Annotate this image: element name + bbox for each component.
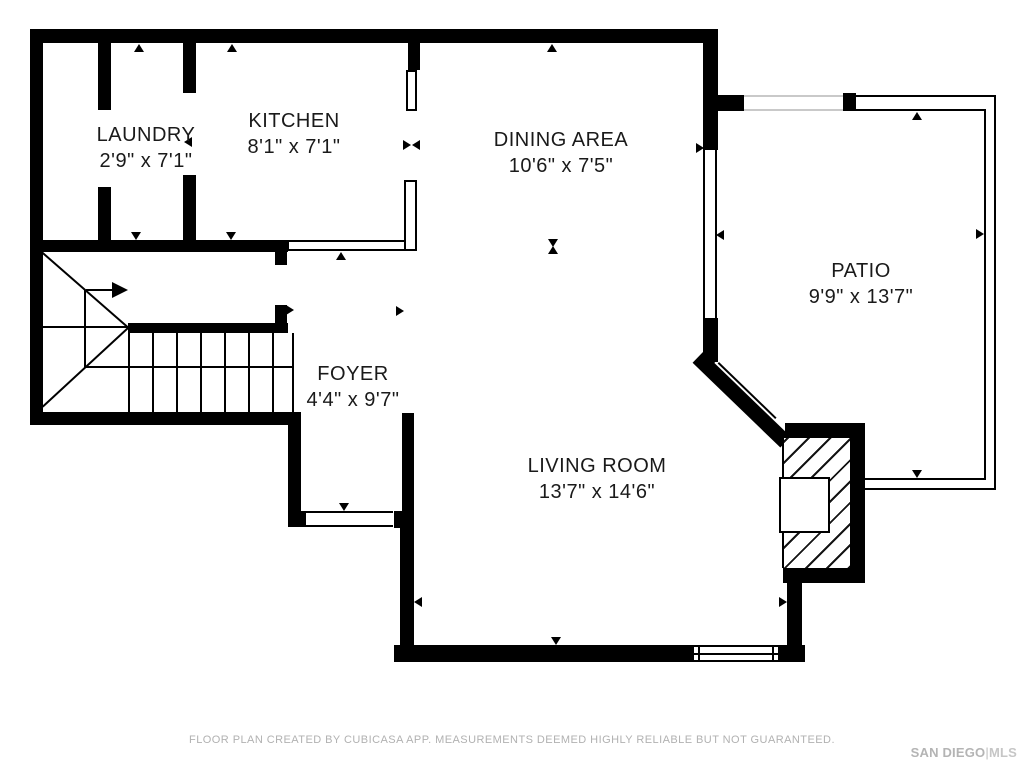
stair-midline	[85, 366, 294, 368]
wall-fireplace-bottom	[783, 568, 865, 583]
stair-tread	[272, 333, 274, 413]
room-dimensions: 9'9" x 13'7"	[809, 284, 914, 310]
opening-marker	[131, 232, 141, 240]
wall-livingroom-left-upper	[402, 413, 414, 513]
slider-marker	[716, 230, 724, 240]
opening-marker	[134, 44, 144, 52]
disclaimer-text: FLOOR PLAN CREATED BY CUBICASA APP. MEAS…	[0, 734, 1024, 746]
room-name: PATIO	[809, 258, 914, 284]
stair-tread	[128, 333, 130, 413]
stair-tread	[224, 333, 226, 413]
wall-landing-bottom	[128, 323, 288, 333]
wall-top	[30, 29, 718, 43]
wall-mid-horizontal	[30, 240, 288, 252]
window-cap-right	[772, 647, 774, 660]
room-label-living-room: LIVING ROOM 13'7" x 14'6"	[528, 453, 667, 505]
window-midline	[694, 653, 778, 655]
stair-tread-end	[292, 333, 294, 413]
opening-marker	[414, 597, 422, 607]
opening-marker	[227, 44, 237, 52]
room-separator-marker	[396, 306, 404, 316]
room-dimensions: 8'1" x 7'1"	[248, 134, 341, 160]
room-dimensions: 4'4" x 9'7"	[307, 387, 400, 413]
patio-rail-right-outer	[994, 95, 996, 490]
stair-winder-line	[84, 290, 86, 368]
room-label-foyer: FOYER 4'4" x 9'7"	[307, 361, 400, 413]
stair-tread	[200, 333, 202, 413]
room-name: LAUNDRY	[97, 122, 196, 148]
entry-door-threshold	[306, 511, 393, 527]
mls-watermark-name: SAN DIEGO	[911, 745, 986, 760]
patio-marker	[976, 229, 984, 239]
door-marker	[286, 305, 294, 315]
patio-marker	[912, 112, 922, 120]
fireplace-firebox	[779, 477, 830, 533]
patio-rail-post	[843, 93, 856, 111]
opening-marker	[336, 252, 346, 260]
room-label-kitchen: KITCHEN 8'1" x 7'1"	[248, 108, 341, 160]
room-dimensions: 10'6" x 7'5"	[494, 153, 628, 179]
room-name: LIVING ROOM	[528, 453, 667, 479]
room-name: KITCHEN	[248, 108, 341, 134]
wall-fireplace-top	[785, 423, 865, 438]
slider-line-outer	[703, 150, 705, 320]
mls-watermark-suffix: MLS	[989, 745, 1017, 760]
wall-foyer-left	[288, 421, 301, 516]
opening-marker	[547, 44, 557, 52]
room-name: FOYER	[307, 361, 400, 387]
opening-marker	[226, 232, 236, 240]
door-marker	[403, 140, 411, 150]
wall-landing-stub-upper	[275, 252, 287, 265]
stair-tread	[152, 333, 154, 413]
room-label-dining-area: DINING AREA 10'6" x 7'5"	[494, 127, 628, 179]
patio-rail-top-inner	[853, 109, 986, 111]
entry-door-marker	[339, 503, 349, 511]
mls-watermark: SAN DIEGO|MLS	[911, 745, 1017, 760]
room-dimensions: 13'7" x 14'6"	[528, 479, 667, 505]
wall-laundry-top	[183, 43, 196, 93]
wall-kitchen-stub	[408, 43, 420, 70]
patio-rail-bottom-inner	[865, 478, 986, 480]
wall-left	[30, 29, 43, 425]
stair-direction-arrow-shaft	[86, 289, 114, 291]
patio-rail-top-outer	[853, 95, 996, 97]
patio-gate-line	[744, 109, 844, 111]
wall-fireplace-right	[850, 438, 865, 583]
slider-marker	[696, 143, 704, 153]
stair-tread	[176, 333, 178, 413]
patio-marker	[912, 470, 922, 478]
stair-direction-arrow-head	[112, 282, 128, 298]
wall-closet-bottom	[98, 187, 111, 240]
room-label-patio: PATIO 9'9" x 13'7"	[809, 258, 914, 310]
room-dimensions: 2'9" x 7'1"	[97, 148, 196, 174]
stair-tread	[248, 333, 250, 413]
wall-stairs-bottom	[30, 412, 301, 425]
kitchen-counter-horizontal	[287, 240, 413, 251]
patio-rail-right-inner	[984, 109, 986, 480]
opening-marker	[551, 637, 561, 645]
window	[692, 645, 780, 662]
stair-winder-line	[42, 326, 130, 328]
door-leaf	[406, 70, 417, 111]
room-label-laundry: LAUNDRY 2'9" x 7'1"	[97, 122, 196, 174]
wall-diagonal	[693, 352, 791, 448]
room-separator-marker	[548, 246, 558, 254]
window-cap-left	[698, 647, 700, 660]
patio-rail-bottom-outer	[865, 488, 996, 490]
kitchen-counter-vertical	[404, 180, 417, 251]
wall-foyer-corner	[288, 511, 306, 527]
room-name: DINING AREA	[494, 127, 628, 153]
patio-gate-line	[744, 95, 844, 97]
wall-laundry-bottom	[183, 175, 196, 240]
wall-closet-top	[98, 43, 111, 110]
wall-patio-stub	[718, 95, 744, 111]
wall-livingroom-left-lower	[400, 524, 414, 662]
opening-marker	[779, 597, 787, 607]
wall-right-lower	[787, 575, 802, 662]
wall-dining-right-upper	[703, 43, 718, 150]
door-marker	[412, 140, 420, 150]
floor-plan: LAUNDRY 2'9" x 7'1" KITCHEN 8'1" x 7'1" …	[0, 0, 1024, 768]
